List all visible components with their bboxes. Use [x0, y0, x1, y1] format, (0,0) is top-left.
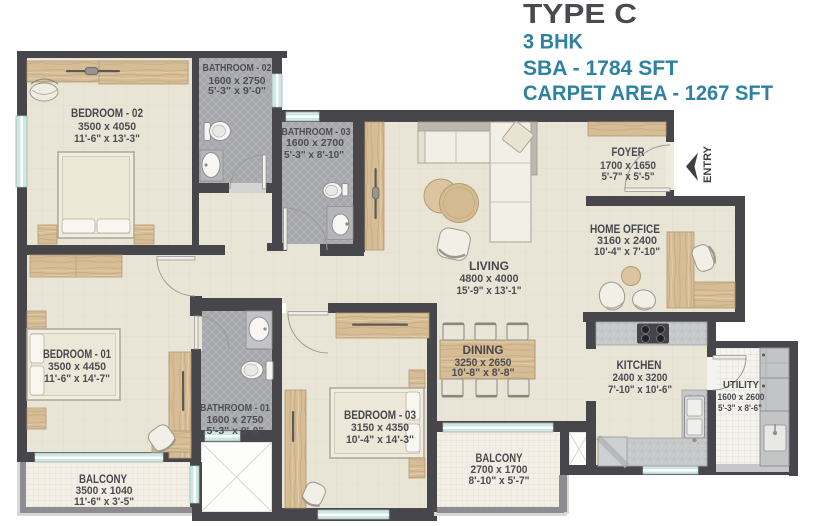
- svg-text:2400 x 3200: 2400 x 3200: [613, 372, 668, 384]
- svg-text:5'-3" x 8'-10": 5'-3" x 8'-10": [284, 149, 344, 161]
- svg-text:BALCONY: BALCONY: [476, 451, 523, 465]
- svg-text:4800 x 4000: 4800 x 4000: [460, 273, 519, 285]
- svg-text:BALCONY: BALCONY: [79, 472, 127, 486]
- svg-text:HOME OFFICE: HOME OFFICE: [590, 222, 660, 236]
- svg-text:5'-7" x 5'-5": 5'-7" x 5'-5": [602, 171, 655, 183]
- svg-text:BATHROOM - 01: BATHROOM - 01: [200, 402, 270, 414]
- svg-text:DINING: DINING: [463, 343, 504, 357]
- svg-text:ENTRY: ENTRY: [702, 145, 714, 183]
- svg-text:BATHROOM - 02: BATHROOM - 02: [203, 62, 272, 74]
- svg-text:7'-10" x 10'-6": 7'-10" x 10'-6": [608, 384, 672, 396]
- svg-text:BEDROOM - 03: BEDROOM - 03: [344, 408, 416, 422]
- svg-text:11'-6" x 14'-7": 11'-6" x 14'-7": [44, 373, 110, 385]
- svg-text:3500 x 4050: 3500 x 4050: [78, 121, 136, 133]
- svg-text:FOYER: FOYER: [612, 145, 645, 159]
- svg-text:3150 x 4350: 3150 x 4350: [351, 422, 409, 434]
- svg-text:5'-3" x 9'-0": 5'-3" x 9'-0": [208, 85, 266, 97]
- svg-text:3500 x 4450: 3500 x 4450: [48, 361, 106, 373]
- svg-text:10'-4" x 14'-3": 10'-4" x 14'-3": [346, 434, 414, 446]
- svg-text:LIVING: LIVING: [469, 259, 509, 273]
- svg-text:10'-8" x 8'-8": 10'-8" x 8'-8": [452, 367, 515, 379]
- svg-text:11'-6" x 13'-3": 11'-6" x 13'-3": [74, 133, 140, 145]
- svg-text:15'-9" x 13'-1": 15'-9" x 13'-1": [457, 285, 522, 297]
- svg-text:10'-4" x 7'-10": 10'-4" x 7'-10": [594, 246, 660, 258]
- svg-text:KITCHEN: KITCHEN: [617, 358, 662, 372]
- svg-text:BEDROOM - 02: BEDROOM - 02: [71, 106, 143, 120]
- svg-text:5'-3" x 9'-0": 5'-3" x 9'-0": [207, 425, 264, 437]
- svg-text:3 BHK: 3 BHK: [523, 31, 583, 54]
- svg-text:1600 x 2600: 1600 x 2600: [718, 392, 765, 403]
- svg-text:SBA - 1784 SFT: SBA - 1784 SFT: [523, 57, 678, 80]
- svg-text:UTILITY: UTILITY: [723, 380, 759, 391]
- svg-text:BEDROOM - 01: BEDROOM - 01: [43, 347, 111, 361]
- svg-text:5'-3" x 8'-6": 5'-3" x 8'-6": [718, 403, 762, 414]
- svg-text:11'-6" x 3'-5": 11'-6" x 3'-5": [74, 496, 134, 508]
- svg-text:TYPE C: TYPE C: [523, 0, 637, 29]
- svg-text:CARPET AREA - 1267 SFT: CARPET AREA - 1267 SFT: [523, 82, 773, 105]
- svg-text:8'-10" x 5'-7": 8'-10" x 5'-7": [469, 475, 530, 487]
- svg-text:1600 x 2700: 1600 x 2700: [286, 137, 344, 149]
